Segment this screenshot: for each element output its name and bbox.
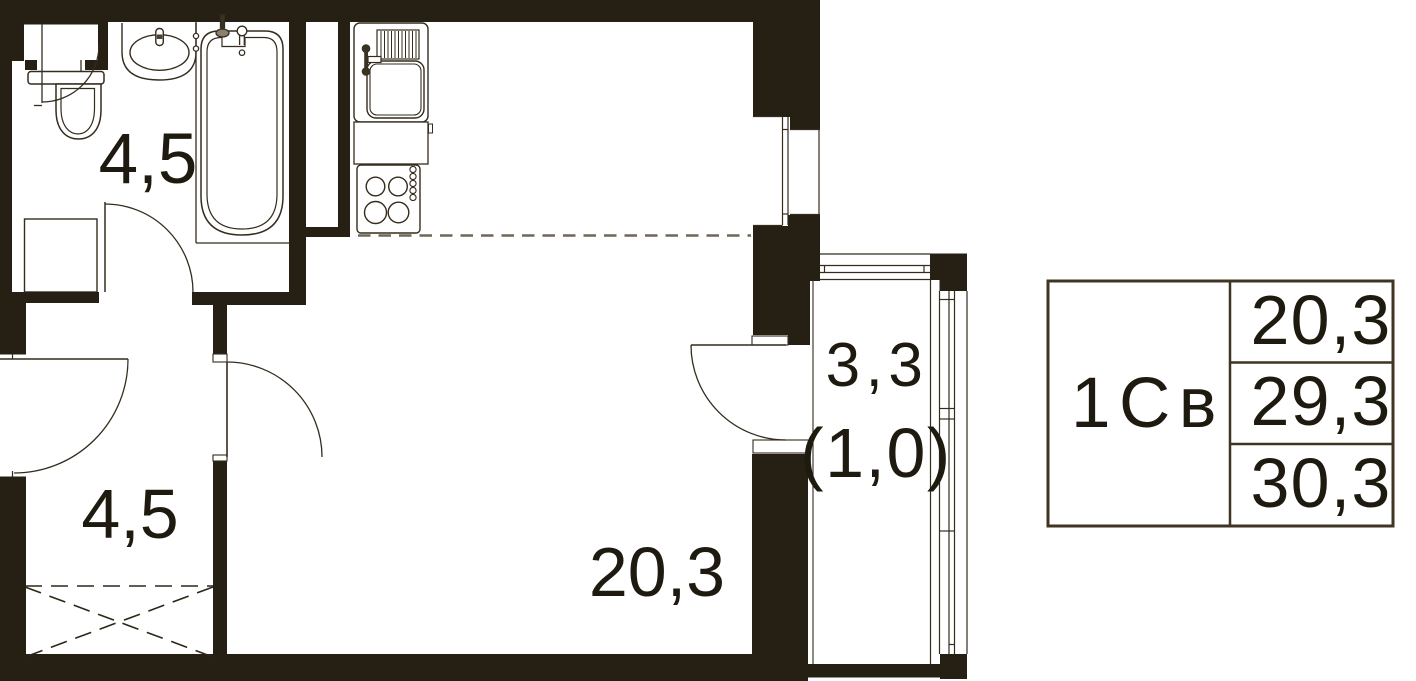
svg-text:4,5: 4,5	[99, 120, 198, 199]
svg-text:20,3: 20,3	[1250, 281, 1391, 359]
svg-text:3,3: 3,3	[826, 331, 929, 400]
svg-text:20,3: 20,3	[589, 533, 725, 611]
svg-text:1Св: 1Св	[1071, 364, 1225, 443]
svg-text:(1,0): (1,0)	[800, 414, 951, 492]
svg-text:4,5: 4,5	[81, 475, 178, 553]
svg-text:30,3: 30,3	[1250, 444, 1391, 522]
svg-text:29,3: 29,3	[1250, 362, 1391, 440]
